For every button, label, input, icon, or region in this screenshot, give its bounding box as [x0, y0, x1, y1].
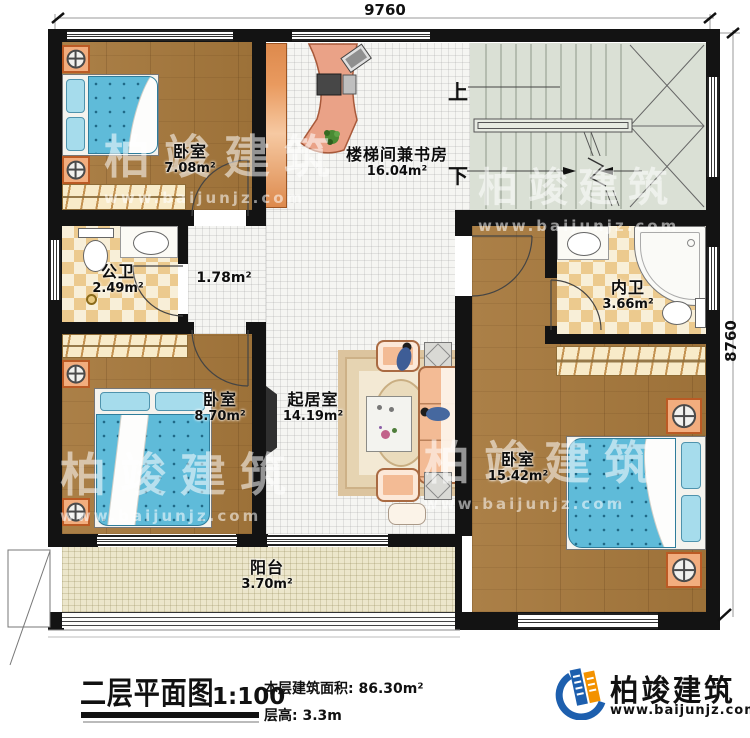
armchair — [376, 340, 420, 372]
nightstand — [62, 360, 90, 388]
mattress — [88, 76, 158, 154]
floor-stairs — [470, 43, 706, 210]
room-area: 14.19m² — [283, 409, 343, 425]
sink-bowl — [133, 231, 169, 255]
room-label-bedroom-bottom-left: 卧室 8.70m² — [194, 390, 245, 425]
room-name: 楼梯间兼书房 — [346, 145, 448, 164]
wall-segment — [48, 210, 194, 226]
toilet-bowl — [662, 301, 692, 325]
nightstand — [666, 398, 702, 434]
wall-segment — [246, 210, 266, 226]
toilet-tank — [78, 228, 114, 238]
pillow — [681, 442, 701, 489]
balcony-door — [97, 535, 237, 546]
sink-counter — [120, 226, 178, 258]
floor-study — [266, 43, 470, 210]
title-underline — [81, 712, 259, 718]
room-area: 15.42m² — [488, 469, 548, 485]
wall-segment — [455, 226, 472, 236]
wall-segment — [236, 534, 266, 547]
wall-segment — [455, 210, 706, 226]
room-label-inner-bath: 内卫 3.66m² — [602, 278, 653, 313]
room-name: 卧室 — [194, 390, 245, 409]
window — [49, 240, 61, 300]
sink-bowl — [567, 232, 601, 256]
wall-segment — [48, 534, 98, 547]
dimension-right-value: 8760 — [722, 320, 740, 362]
wardrobe — [62, 184, 186, 210]
window — [518, 613, 658, 629]
sheet-fold — [635, 438, 676, 548]
ottoman — [388, 503, 426, 525]
wardrobe — [556, 346, 706, 376]
room-label-bedroom-right: 卧室 15.42m² — [488, 450, 548, 485]
wall-segment — [545, 326, 557, 334]
room-label-balcony: 阳台 3.70m² — [241, 558, 292, 593]
room-name: 卧室 — [488, 450, 548, 469]
wardrobe — [62, 334, 188, 358]
wall-segment — [48, 322, 194, 334]
wall-segment — [178, 314, 188, 322]
room-area: 1.78m² — [196, 270, 251, 287]
room-label-public-bath: 公卫 2.49m² — [92, 262, 143, 297]
room-name: 内卫 — [602, 278, 653, 297]
nightstand — [62, 45, 90, 73]
brand-website: www.baijunjz.com — [610, 703, 750, 718]
plan-title: 二层平面图 — [80, 668, 214, 713]
window — [292, 30, 430, 41]
wall-segment — [455, 547, 462, 612]
dimension-top-value: 9760 — [364, 1, 406, 19]
window — [707, 247, 719, 310]
room-label-living-room: 起居室 14.19m² — [283, 390, 343, 425]
wall-segment — [178, 226, 188, 264]
room-label-bedroom-top-left: 卧室 7.08m² — [164, 142, 215, 177]
sheet-fold — [104, 414, 150, 526]
wall-segment — [252, 42, 266, 212]
pillow — [66, 79, 85, 113]
room-area: 7.08m² — [164, 161, 215, 177]
stairs-down-label: 下 — [448, 160, 468, 189]
nightstand — [666, 552, 702, 588]
armchair — [376, 468, 420, 502]
pillow — [100, 392, 150, 411]
tv — [266, 386, 277, 456]
wall-segment — [545, 334, 706, 344]
bed — [62, 74, 159, 156]
mattress — [568, 438, 676, 548]
toilet-tank — [695, 298, 706, 328]
sliding-door — [267, 535, 388, 546]
wall-segment — [252, 334, 266, 534]
side-table — [424, 472, 452, 500]
pillow — [681, 495, 701, 542]
window — [707, 77, 719, 177]
room-area: 16.04m² — [346, 164, 448, 180]
bookshelf-cabinet — [265, 43, 287, 208]
room-label-study: 楼梯间兼书房 16.04m² — [346, 145, 448, 180]
balcony-railing — [62, 612, 455, 628]
nightstand — [62, 156, 90, 184]
room-name: 卧室 — [164, 142, 215, 161]
floor-plan-canvas: 柏竣建筑 www.baijunjz.com 柏竣建筑 www.baijunjz.… — [0, 0, 750, 738]
window — [67, 30, 233, 41]
room-area: 8.70m² — [194, 409, 245, 425]
room-area: 2.49m² — [92, 281, 143, 297]
wall-segment — [455, 296, 472, 536]
wall-segment — [246, 322, 266, 334]
coffee-table — [366, 396, 412, 452]
floor-area-text: 本层建筑面积: 86.30m² — [264, 678, 423, 698]
wall-segment — [545, 226, 557, 278]
room-name: 公卫 — [92, 262, 143, 281]
brand-logo-icon — [552, 662, 606, 720]
room-area: 3.66m² — [602, 297, 653, 313]
room-area: 3.70m² — [241, 577, 292, 593]
pillow — [66, 117, 85, 151]
sheet-fold — [120, 76, 158, 154]
room-label-hall: 1.78m² — [196, 270, 251, 287]
wall-segment — [388, 534, 462, 547]
sink-counter — [557, 226, 609, 260]
toilet — [660, 298, 706, 328]
nightstand — [62, 498, 90, 526]
floor-height-text: 层高: 3.3m — [264, 705, 342, 725]
mattress — [96, 414, 210, 526]
stairs-up-label: 上 — [448, 76, 468, 105]
title-underline-secondary — [83, 721, 259, 723]
room-name: 阳台 — [241, 558, 292, 577]
room-name: 起居室 — [283, 390, 343, 409]
bed — [566, 436, 706, 550]
